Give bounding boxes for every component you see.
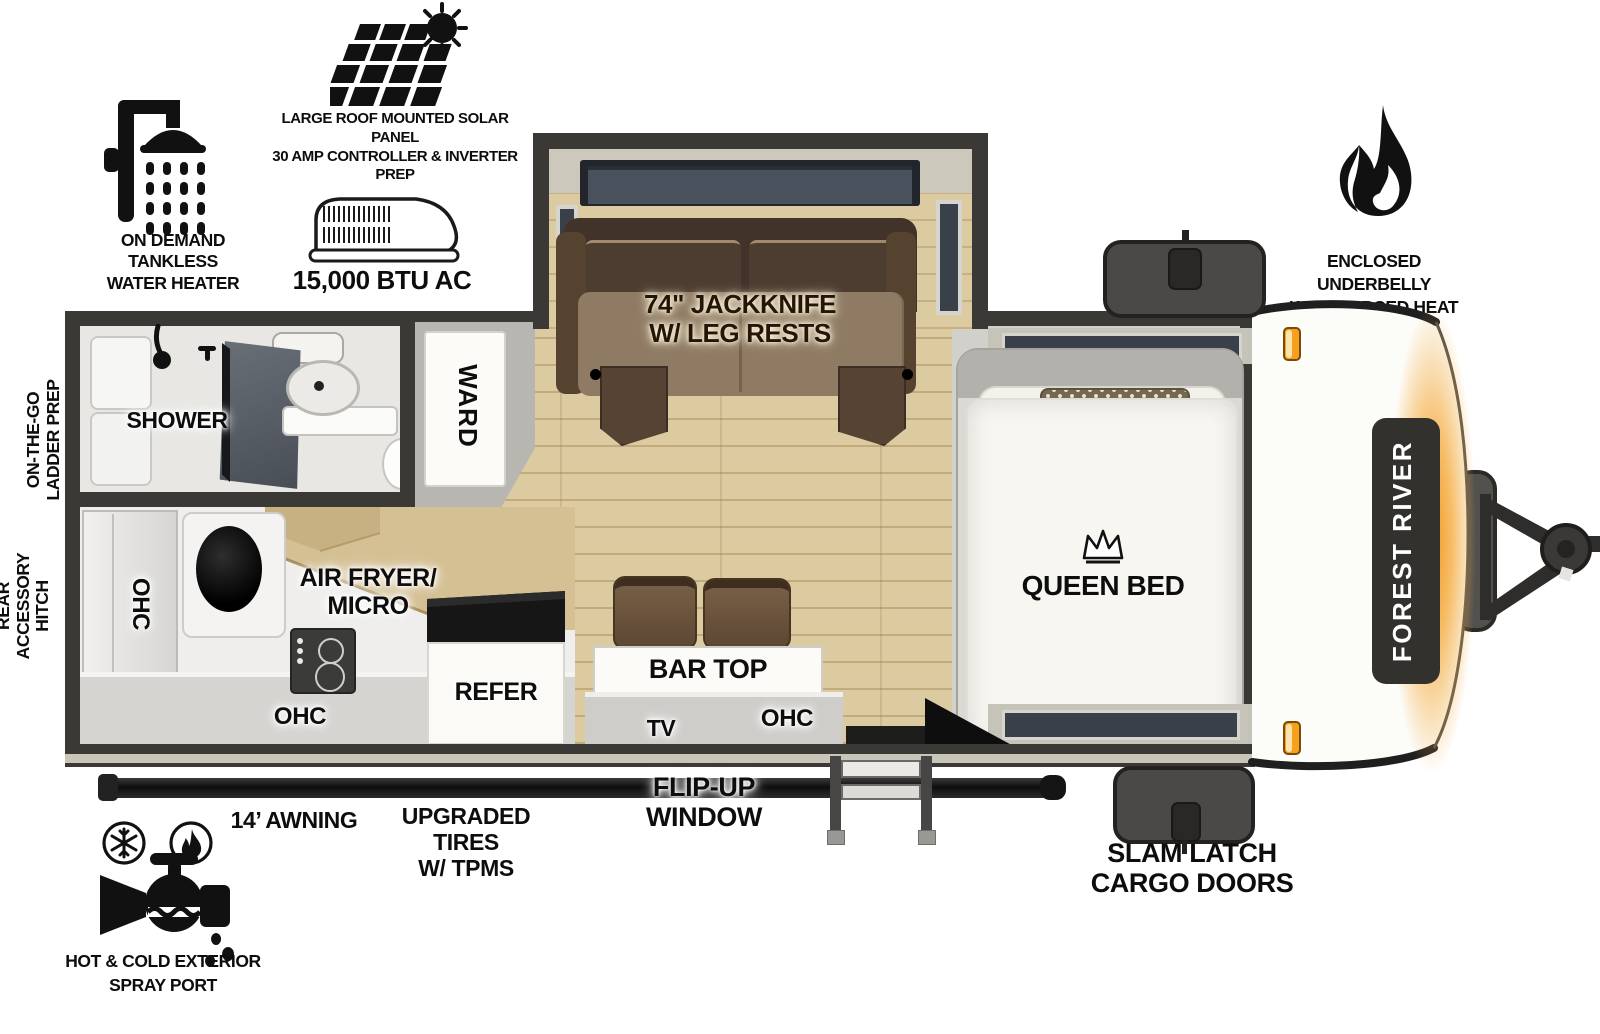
cargo-doors-label: SLAM LATCH CARGO DOORS [1082, 838, 1302, 898]
cargo-door-top-latch [1168, 248, 1202, 290]
cargo-door-bottom-latch [1171, 802, 1201, 842]
snowflake-icon [104, 823, 144, 863]
tongue-hitch [1455, 472, 1600, 630]
brand-logo-text: FOREST RIVER [1388, 401, 1424, 701]
spray-port-caption: HOT & COLD EXTERIOR SPRAY PORT [52, 950, 274, 997]
cargo-door-top-stem [1182, 230, 1189, 244]
rv-floorplan-page: ON DEMAND TANKLESS WATER HEATER LARGE RO… [0, 0, 1600, 1034]
